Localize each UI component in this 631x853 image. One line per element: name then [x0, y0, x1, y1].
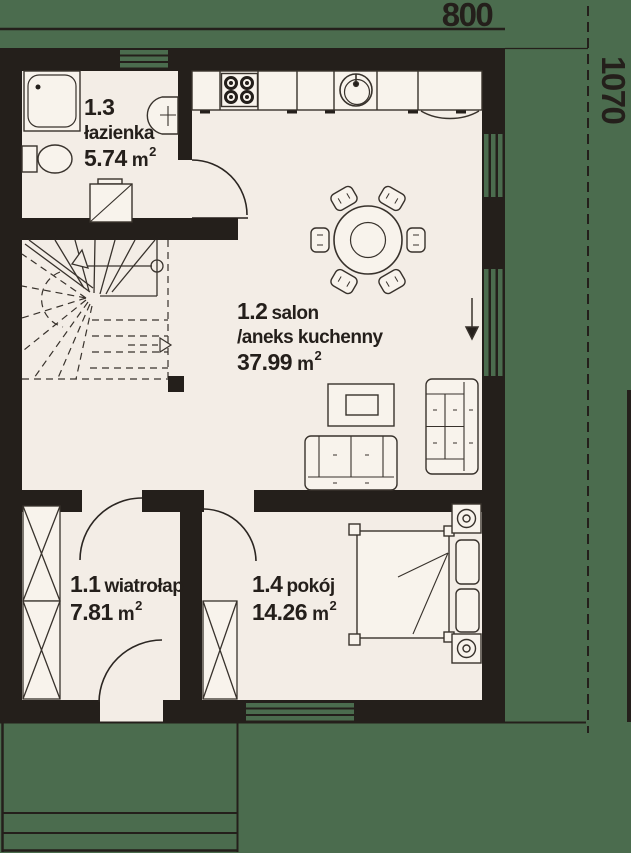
chimney-vent-icon — [120, 50, 168, 68]
room-label-salon: 1.2 salon /aneks kuchenny 37.99m2 — [237, 299, 383, 376]
stair-post — [168, 376, 184, 392]
nightstand — [452, 504, 481, 533]
room-number: 1.1 wiatrołap — [70, 572, 183, 598]
nightstand — [452, 634, 481, 663]
room-label-pokoj: 1.4 pokój 14.26m2 — [252, 572, 336, 626]
wardrobe-wiatrolap — [23, 506, 60, 699]
pillow — [456, 589, 479, 632]
toilet-icon — [22, 145, 72, 173]
room-area: 37.99m2 — [237, 350, 383, 376]
window-bottom-pokoj — [246, 703, 354, 721]
room-area: 7.81m2 — [70, 600, 183, 626]
dimension-width-label: 800 — [432, 0, 502, 34]
sofa-horizontal — [305, 436, 397, 490]
round-table — [334, 206, 402, 274]
window-right-salon — [484, 269, 503, 376]
chair — [407, 228, 425, 252]
room-number: 1.4 pokój — [252, 572, 336, 598]
window-right-kitchen — [484, 134, 503, 197]
pillow — [456, 540, 479, 584]
room-label-lazienka: 1.3 łazienka 5.74m2 — [84, 95, 156, 172]
washing-machine-icon — [90, 179, 132, 222]
coffee-table — [328, 384, 394, 426]
sofa-vertical — [426, 379, 478, 474]
wardrobe-pokoj — [203, 601, 237, 699]
room-area: 14.26m2 — [252, 600, 336, 626]
chair — [311, 228, 329, 252]
site-boundary-line — [627, 390, 631, 722]
room-label-wiatrolap: 1.1 wiatrołap 7.81m2 — [70, 572, 183, 626]
room-number: 1.2 salon — [237, 299, 383, 325]
bed — [349, 524, 479, 645]
room-area: 5.74m2 — [84, 146, 156, 172]
dimension-height-label: 1070 — [594, 56, 631, 123]
room-name: /aneks kuchenny — [237, 327, 383, 348]
stove-icon — [222, 74, 258, 107]
shower-icon — [24, 71, 80, 131]
room-number: 1.3 — [84, 95, 156, 121]
floor-plan: 1.3 łazienka 5.74m2 1.2 salon /aneks kuc… — [0, 0, 631, 853]
room-name: łazienka — [84, 123, 156, 144]
